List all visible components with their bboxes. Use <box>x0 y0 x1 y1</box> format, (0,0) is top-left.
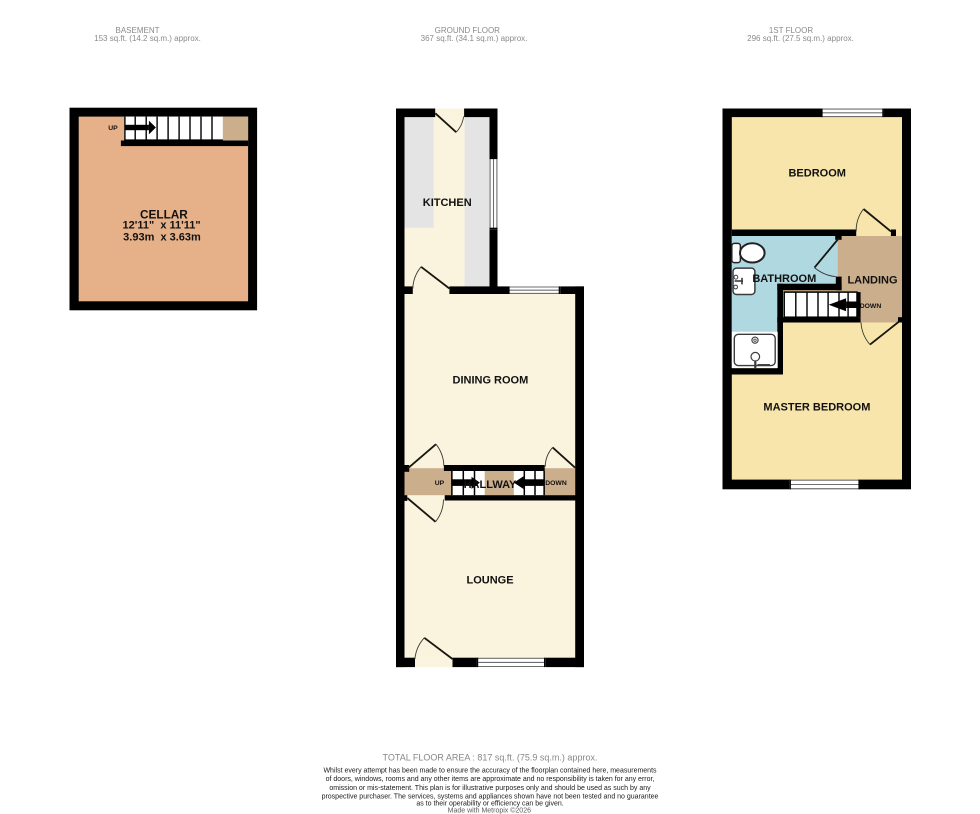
svg-text:UP: UP <box>108 125 118 132</box>
svg-text:Whilst every attempt has been: Whilst every attempt has been made to en… <box>323 767 657 774</box>
svg-text:LOUNGE: LOUNGE <box>466 574 513 586</box>
svg-text:KITCHEN: KITCHEN <box>423 197 472 209</box>
svg-text:153 sq.ft. (14.2 sq.m.) approx: 153 sq.ft. (14.2 sq.m.) approx. <box>94 34 201 43</box>
svg-text:DOWN: DOWN <box>545 480 567 487</box>
svg-text:BATHROOM: BATHROOM <box>752 273 816 285</box>
svg-text:of doors, windows, rooms and a: of doors, windows, rooms and any other i… <box>326 776 655 783</box>
svg-text:prospective purchaser. The ser: prospective purchaser. The services, sys… <box>322 793 659 800</box>
svg-text:12'11" x 11'11": 12'11" x 11'11" <box>123 220 201 232</box>
svg-text:DOWN: DOWN <box>860 303 882 310</box>
svg-text:LANDING: LANDING <box>847 274 897 286</box>
svg-text:3.93m x 3.63m: 3.93m x 3.63m <box>123 231 201 243</box>
svg-text:TOTAL FLOOR AREA : 817 sq.ft.: TOTAL FLOOR AREA : 817 sq.ft. (75.9 sq.m… <box>383 753 598 763</box>
svg-text:296 sq.ft. (27.5 sq.m.) approx: 296 sq.ft. (27.5 sq.m.) approx. <box>747 34 854 43</box>
svg-text:HALLWAY: HALLWAY <box>464 479 517 491</box>
svg-text:BEDROOM: BEDROOM <box>788 167 845 179</box>
svg-text:DINING ROOM: DINING ROOM <box>453 375 529 387</box>
svg-text:367 sq.ft. (34.1 sq.m.) approx: 367 sq.ft. (34.1 sq.m.) approx. <box>421 34 528 43</box>
svg-text:MASTER BEDROOM: MASTER BEDROOM <box>763 401 870 413</box>
svg-text:omission or mis-statement. Thi: omission or mis-statement. This plan is … <box>329 785 651 792</box>
svg-text:UP: UP <box>435 480 445 487</box>
svg-text:Made with Metropix ©2026: Made with Metropix ©2026 <box>448 806 531 814</box>
